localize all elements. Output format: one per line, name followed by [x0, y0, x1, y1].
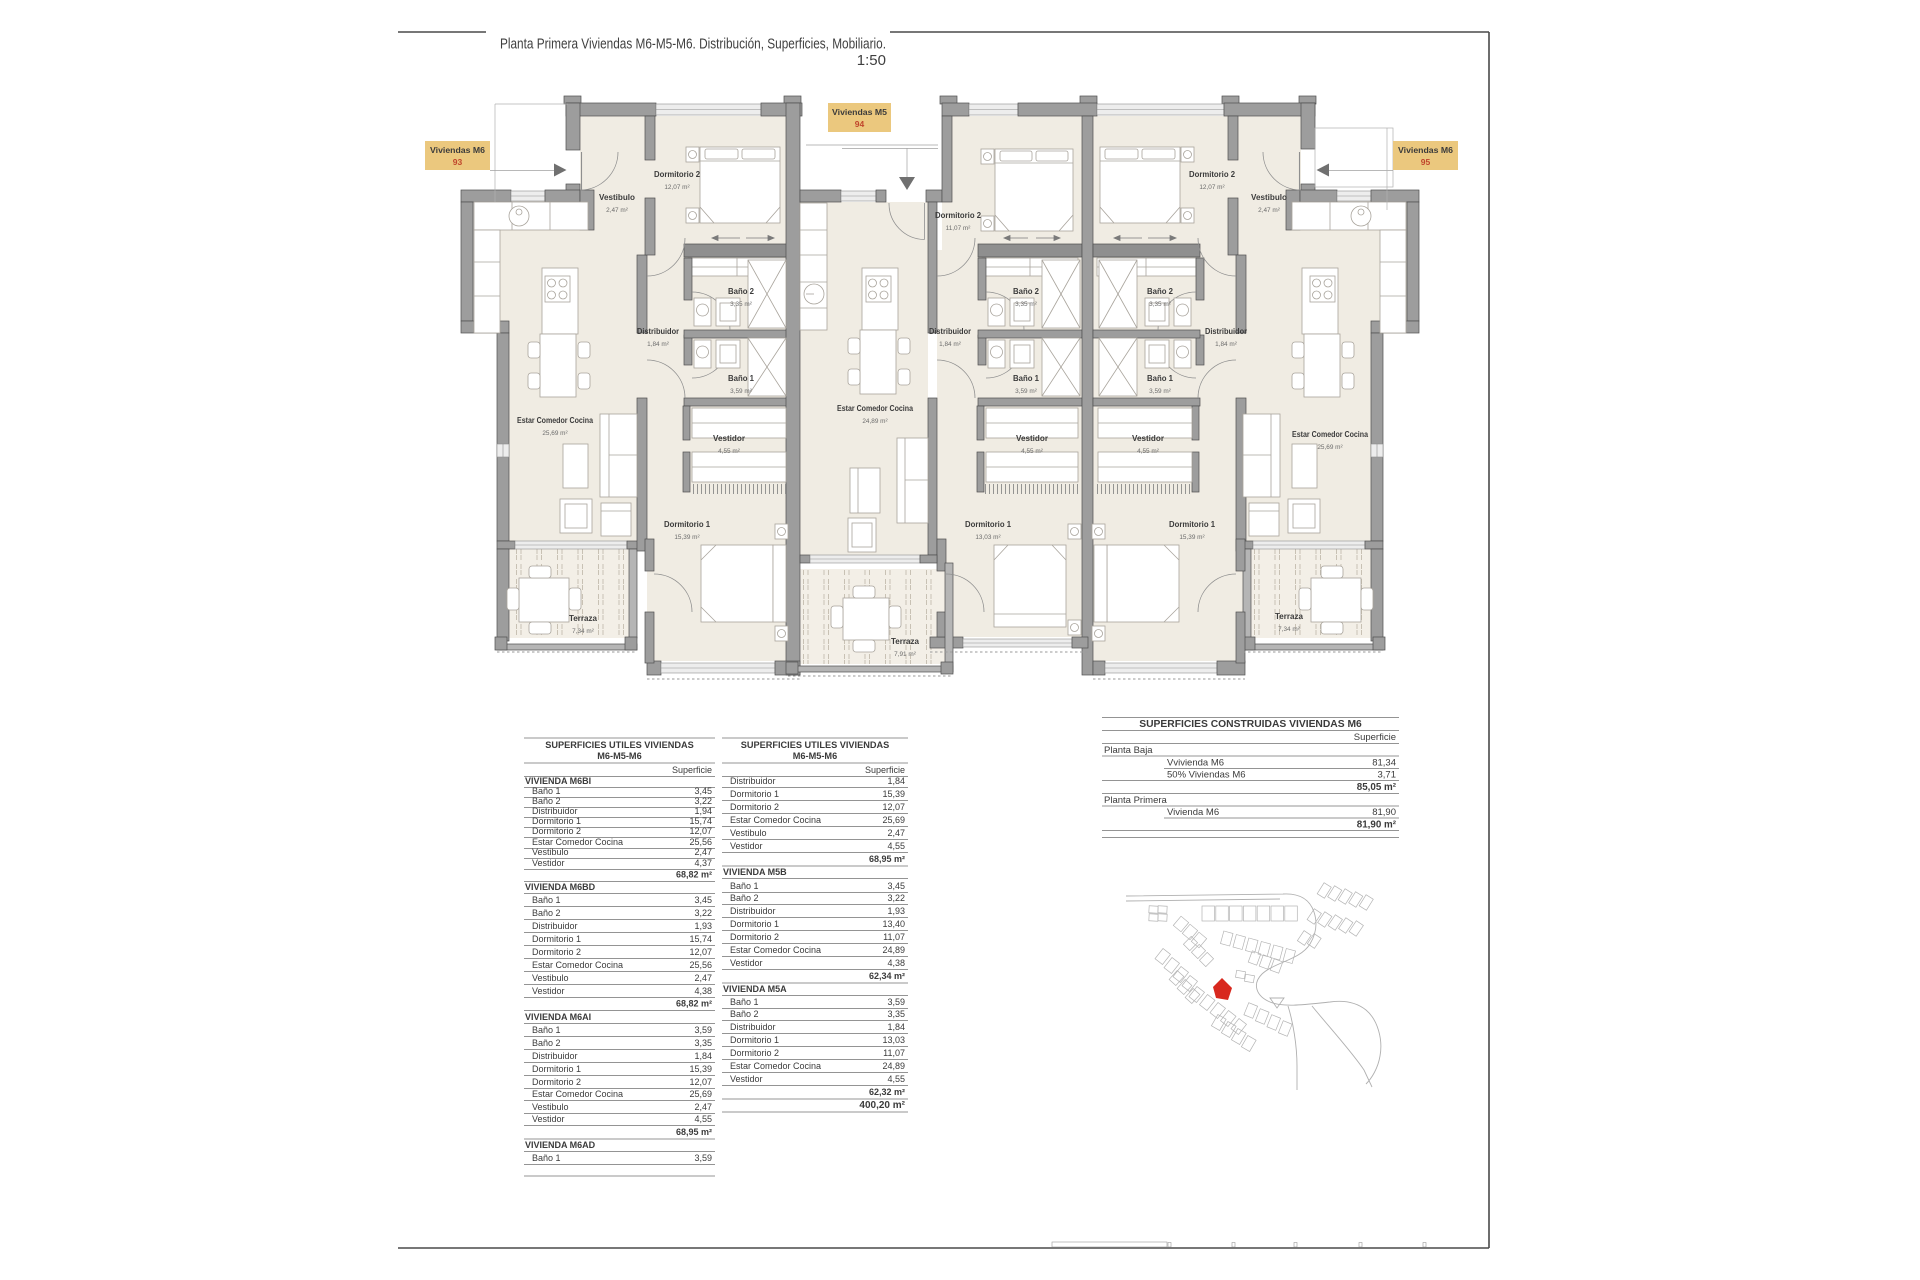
svg-text:3,59 m²: 3,59 m²: [730, 388, 752, 395]
svg-text:Planta Primera: Planta Primera: [1104, 795, 1168, 806]
svg-text:85,05 m²: 85,05 m²: [1357, 782, 1397, 793]
svg-text:1,84 m²: 1,84 m²: [939, 341, 961, 348]
svg-text:Vestidor: Vestidor: [532, 1114, 565, 1124]
svg-text:Viviendas M5: Viviendas M5: [832, 107, 887, 117]
svg-text:11,07 m²: 11,07 m²: [946, 225, 971, 232]
svg-text:Dormitorio 1: Dormitorio 1: [730, 1035, 779, 1045]
svg-text:12,07: 12,07: [882, 802, 905, 812]
svg-text:Distribuidor: Distribuidor: [730, 776, 776, 786]
svg-text:Dormitorio 1: Dormitorio 1: [730, 919, 779, 929]
svg-text:Superficie: Superficie: [1354, 732, 1396, 743]
svg-text:Baño 1: Baño 1: [1013, 373, 1039, 383]
svg-text:4,55 m²: 4,55 m²: [1021, 448, 1043, 455]
svg-text:94: 94: [855, 119, 865, 129]
svg-text:Vestibulo: Vestibulo: [532, 1102, 569, 1112]
svg-text:1,84 m²: 1,84 m²: [1215, 341, 1237, 348]
svg-text:24,89: 24,89: [882, 1061, 905, 1071]
svg-text:Estar Comedor Cocina: Estar Comedor Cocina: [532, 1089, 623, 1099]
svg-text:68,95 m²: 68,95 m²: [676, 1127, 712, 1137]
svg-text:1,84: 1,84: [887, 776, 905, 786]
svg-text:Dormitorio 1: Dormitorio 1: [1169, 519, 1215, 529]
svg-text:Baño 2: Baño 2: [532, 1038, 561, 1048]
svg-text:M6-M5-M6: M6-M5-M6: [597, 751, 641, 761]
svg-text:VIVIENDA M6BI: VIVIENDA M6BI: [525, 776, 591, 786]
svg-text:Vestibulo: Vestibulo: [1251, 192, 1287, 202]
svg-text:SUPERFICIES CONSTRUIDAS VIVIEN: SUPERFICIES CONSTRUIDAS VIVIENDAS M6: [1139, 719, 1362, 730]
svg-text:2,47: 2,47: [694, 847, 712, 857]
svg-text:81,34: 81,34: [1372, 758, 1396, 769]
svg-text:Dormitorio 1: Dormitorio 1: [532, 934, 581, 944]
svg-text:Baño 2: Baño 2: [730, 1009, 759, 1019]
svg-text:Dormitorio 2: Dormitorio 2: [935, 210, 981, 220]
svg-text:Vestibulo: Vestibulo: [532, 973, 569, 983]
svg-text:1:50: 1:50: [857, 52, 886, 69]
svg-text:Dormitorio 1: Dormitorio 1: [730, 789, 779, 799]
svg-text:Distribuidor: Distribuidor: [637, 326, 680, 336]
svg-text:Terraza: Terraza: [1275, 611, 1303, 621]
svg-text:Vestidor: Vestidor: [532, 986, 565, 996]
svg-text:13,03 m²: 13,03 m²: [975, 534, 1000, 541]
svg-text:15,39: 15,39: [689, 1064, 712, 1074]
svg-text:25,56: 25,56: [689, 960, 712, 970]
svg-text:3,59 m²: 3,59 m²: [1015, 388, 1037, 395]
svg-text:3,35: 3,35: [887, 1009, 905, 1019]
svg-text:4,37: 4,37: [694, 858, 712, 868]
svg-text:7,91 m²: 7,91 m²: [894, 651, 916, 658]
svg-text:Vestidor: Vestidor: [532, 858, 565, 868]
svg-text:3,59: 3,59: [694, 1153, 712, 1163]
svg-text:Dormitorio 2: Dormitorio 2: [730, 1048, 779, 1058]
svg-text:Vestidor: Vestidor: [1016, 433, 1049, 443]
svg-text:M6-M5-M6: M6-M5-M6: [793, 751, 837, 761]
svg-text:25,56: 25,56: [689, 837, 712, 847]
svg-text:50% Viviendas M6: 50% Viviendas M6: [1167, 770, 1246, 781]
svg-text:2,47 m²: 2,47 m²: [1258, 207, 1280, 214]
svg-text:1,93: 1,93: [887, 906, 905, 916]
svg-text:Viviendas M6: Viviendas M6: [1398, 145, 1453, 155]
svg-text:Distribuidor: Distribuidor: [730, 1022, 776, 1032]
svg-text:3,22: 3,22: [694, 908, 712, 918]
svg-text:Baño 2: Baño 2: [728, 286, 754, 296]
svg-text:3,22: 3,22: [694, 796, 712, 806]
svg-text:2,47: 2,47: [887, 828, 905, 838]
svg-text:12,07 m²: 12,07 m²: [1199, 184, 1224, 191]
svg-text:3,45: 3,45: [887, 881, 905, 891]
svg-text:Dormitorio 1: Dormitorio 1: [532, 1064, 581, 1074]
svg-text:12,07: 12,07: [689, 1077, 712, 1087]
svg-text:68,82 m²: 68,82 m²: [676, 870, 712, 880]
svg-text:15,74: 15,74: [689, 816, 712, 826]
svg-text:24,89: 24,89: [882, 945, 905, 955]
svg-text:Baño 1: Baño 1: [532, 786, 561, 796]
svg-text:Estar Comedor Cocina: Estar Comedor Cocina: [517, 415, 593, 425]
svg-text:Estar Comedor Cocina: Estar Comedor Cocina: [730, 815, 821, 825]
svg-text:VIVIENDA M6BD: VIVIENDA M6BD: [525, 882, 596, 892]
svg-text:81,90 m²: 81,90 m²: [1357, 820, 1397, 831]
svg-text:Dormitorio 2: Dormitorio 2: [730, 932, 779, 942]
svg-text:Planta Primera Viviendas M6-M5: Planta Primera Viviendas M6-M5-M6. Distr…: [500, 36, 886, 53]
svg-text:81,90: 81,90: [1372, 807, 1396, 818]
svg-text:Dormitorio 2: Dormitorio 2: [532, 1077, 581, 1087]
svg-text:Superficie: Superficie: [672, 765, 712, 775]
svg-text:Dormitorio 1: Dormitorio 1: [532, 816, 581, 826]
svg-text:25,69: 25,69: [882, 815, 905, 825]
svg-text:4,55: 4,55: [694, 1114, 712, 1124]
svg-text:Vestidor: Vestidor: [1132, 433, 1165, 443]
svg-text:4,55 m²: 4,55 m²: [718, 448, 740, 455]
svg-text:2,47 m²: 2,47 m²: [606, 207, 628, 214]
svg-text:3,59 m²: 3,59 m²: [1149, 388, 1171, 395]
svg-text:62,34 m²: 62,34 m²: [869, 971, 905, 981]
svg-text:Estar Comedor Cocina: Estar Comedor Cocina: [1292, 429, 1368, 439]
svg-text:25,69: 25,69: [689, 1089, 712, 1099]
svg-text:1,84 m²: 1,84 m²: [647, 341, 669, 348]
svg-text:3,59: 3,59: [694, 1025, 712, 1035]
svg-text:Vestidor: Vestidor: [730, 841, 763, 851]
svg-text:4,38: 4,38: [694, 986, 712, 996]
svg-text:Estar Comedor Cocina: Estar Comedor Cocina: [837, 403, 913, 413]
svg-text:Vestidor: Vestidor: [730, 1074, 763, 1084]
svg-text:1,93: 1,93: [694, 921, 712, 931]
svg-text:Distribuidor: Distribuidor: [532, 806, 578, 816]
svg-text:13,03: 13,03: [882, 1035, 905, 1045]
svg-text:24,89 m²: 24,89 m²: [862, 418, 887, 425]
svg-text:3,59: 3,59: [887, 997, 905, 1007]
svg-text:3,35 m²: 3,35 m²: [1015, 301, 1037, 308]
svg-text:Dormitorio 1: Dormitorio 1: [664, 519, 710, 529]
svg-text:25,69 m²: 25,69 m²: [1317, 444, 1342, 451]
svg-text:3,71: 3,71: [1378, 770, 1397, 781]
svg-text:Baño 1: Baño 1: [532, 1153, 561, 1163]
svg-text:VIVIENDA M6AD: VIVIENDA M6AD: [525, 1140, 596, 1150]
svg-text:Distribuidor: Distribuidor: [532, 1051, 578, 1061]
svg-text:Distribuidor: Distribuidor: [929, 326, 972, 336]
svg-text:Vvivienda M6: Vvivienda M6: [1167, 758, 1224, 769]
svg-text:3,45: 3,45: [694, 895, 712, 905]
svg-text:62,32 m²: 62,32 m²: [869, 1087, 905, 1097]
svg-text:95: 95: [1421, 157, 1431, 167]
svg-text:4,55: 4,55: [887, 841, 905, 851]
svg-text:Baño 1: Baño 1: [730, 881, 759, 891]
svg-text:Estar Comedor Cocina: Estar Comedor Cocina: [532, 837, 623, 847]
svg-text:Baño 1: Baño 1: [532, 895, 561, 905]
svg-text:Vestibulo: Vestibulo: [599, 192, 635, 202]
svg-text:VIVIENDA M5B: VIVIENDA M5B: [723, 867, 787, 877]
svg-text:Vestibulo: Vestibulo: [730, 828, 767, 838]
svg-text:Baño 2: Baño 2: [1013, 286, 1039, 296]
svg-text:3,35: 3,35: [694, 1038, 712, 1048]
svg-text:Distribuidor: Distribuidor: [532, 921, 578, 931]
svg-text:Baño 1: Baño 1: [1147, 373, 1173, 383]
svg-text:2,47: 2,47: [694, 973, 712, 983]
svg-text:7,34 m²: 7,34 m²: [572, 628, 594, 635]
svg-text:3,35 m²: 3,35 m²: [730, 301, 752, 308]
svg-text:2,47: 2,47: [694, 1102, 712, 1112]
svg-text:Dormitorio 1: Dormitorio 1: [965, 519, 1011, 529]
svg-text:400,20 m²: 400,20 m²: [859, 1100, 905, 1111]
svg-text:12,07: 12,07: [689, 947, 712, 957]
svg-text:Estar Comedor Cocina: Estar Comedor Cocina: [730, 945, 821, 955]
svg-text:VIVIENDA M5A: VIVIENDA M5A: [723, 984, 787, 994]
svg-text:4,38: 4,38: [887, 958, 905, 968]
svg-text:3,22: 3,22: [887, 893, 905, 903]
svg-text:4,55 m²: 4,55 m²: [1137, 448, 1159, 455]
svg-text:1,84: 1,84: [887, 1022, 905, 1032]
svg-text:Baño 2: Baño 2: [1147, 286, 1173, 296]
svg-text:Dormitorio 2: Dormitorio 2: [532, 826, 581, 836]
svg-text:3,35 m²: 3,35 m²: [1149, 301, 1171, 308]
svg-text:Superficie: Superficie: [865, 765, 905, 775]
svg-text:Terraza: Terraza: [569, 613, 597, 623]
svg-text:Baño 1: Baño 1: [728, 373, 754, 383]
svg-text:15,39: 15,39: [882, 789, 905, 799]
svg-text:Planta Baja: Planta Baja: [1104, 745, 1153, 756]
svg-text:7,34 m²: 7,34 m²: [1278, 626, 1300, 633]
svg-text:13,40: 13,40: [882, 919, 905, 929]
svg-text:Vestidor: Vestidor: [730, 958, 763, 968]
svg-text:Estar Comedor Cocina: Estar Comedor Cocina: [730, 1061, 821, 1071]
svg-text:Distribuidor: Distribuidor: [1205, 326, 1248, 336]
svg-text:Estar Comedor Cocina: Estar Comedor Cocina: [532, 960, 623, 970]
svg-text:15,39 m²: 15,39 m²: [674, 534, 699, 541]
svg-text:68,82 m²: 68,82 m²: [676, 999, 712, 1009]
svg-text:SUPERFICIES UTILES VIVIENDAS: SUPERFICIES UTILES VIVIENDAS: [741, 740, 890, 750]
svg-text:1,94: 1,94: [694, 806, 712, 816]
svg-text:Vestidor: Vestidor: [713, 433, 746, 443]
svg-text:93: 93: [453, 157, 463, 167]
svg-text:Baño 2: Baño 2: [730, 893, 759, 903]
svg-text:VIVIENDA M6AI: VIVIENDA M6AI: [525, 1012, 591, 1022]
svg-text:12,07: 12,07: [689, 826, 712, 836]
svg-text:68,95 m²: 68,95 m²: [869, 854, 905, 864]
svg-text:SUPERFICIES UTILES VIVIENDAS: SUPERFICIES UTILES VIVIENDAS: [545, 740, 694, 750]
svg-text:4,55: 4,55: [887, 1074, 905, 1084]
svg-text:1,84: 1,84: [694, 1051, 712, 1061]
svg-text:3,45: 3,45: [694, 786, 712, 796]
svg-text:Vestibulo: Vestibulo: [532, 847, 569, 857]
svg-text:Baño 1: Baño 1: [730, 997, 759, 1007]
svg-text:Dormitorio 2: Dormitorio 2: [730, 802, 779, 812]
svg-text:Dormitorio 2: Dormitorio 2: [532, 947, 581, 957]
svg-text:12,07 m²: 12,07 m²: [664, 184, 689, 191]
svg-text:15,39 m²: 15,39 m²: [1179, 534, 1204, 541]
svg-text:Baño 2: Baño 2: [532, 796, 561, 806]
svg-text:Baño 1: Baño 1: [532, 1025, 561, 1035]
svg-text:Distribuidor: Distribuidor: [730, 906, 776, 916]
svg-text:Dormitorio 2: Dormitorio 2: [654, 169, 700, 179]
svg-text:Viviendas M6: Viviendas M6: [430, 145, 485, 155]
svg-text:11,07: 11,07: [883, 932, 905, 942]
svg-text:Terraza: Terraza: [891, 636, 919, 646]
svg-text:Baño 2: Baño 2: [532, 908, 561, 918]
svg-text:25,69 m²: 25,69 m²: [542, 430, 567, 437]
svg-text:15,74: 15,74: [689, 934, 712, 944]
svg-text:Vivienda M6: Vivienda M6: [1167, 807, 1219, 818]
svg-text:Dormitorio 2: Dormitorio 2: [1189, 169, 1235, 179]
svg-text:11,07: 11,07: [883, 1048, 905, 1058]
